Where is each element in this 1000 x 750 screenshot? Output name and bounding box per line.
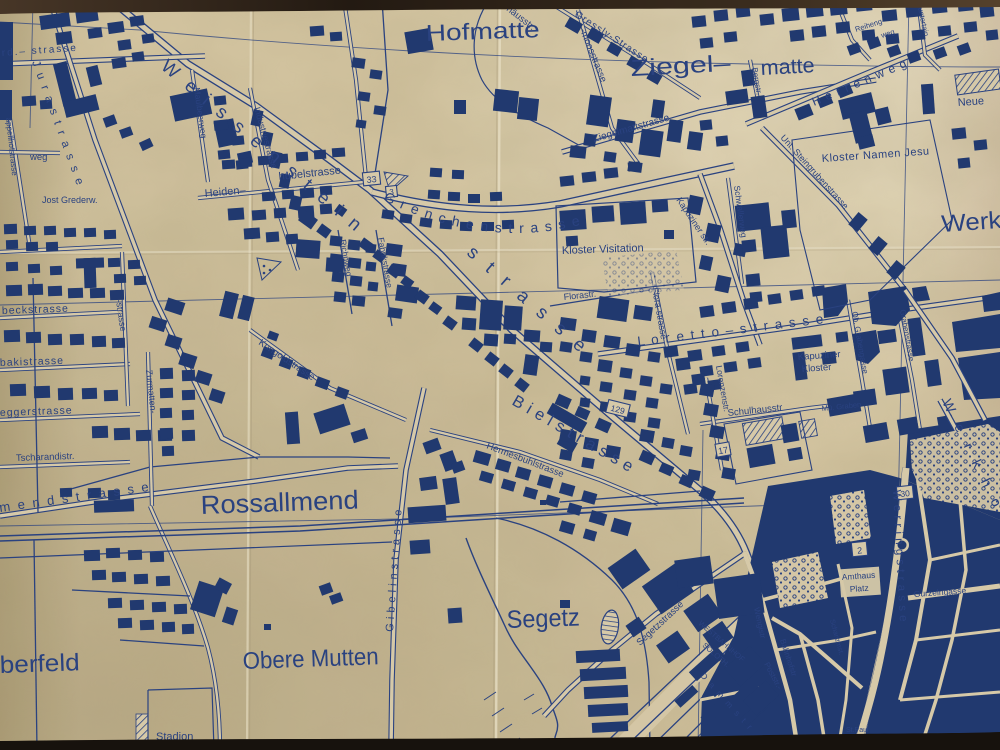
- svg-text:Neue: Neue: [957, 95, 984, 109]
- svg-text:berfeld: berfeld: [0, 649, 80, 679]
- svg-text:Werk: Werk: [941, 207, 1000, 238]
- svg-text:beckstrasse: beckstrasse: [2, 303, 69, 317]
- svg-text:weg: weg: [29, 152, 47, 163]
- svg-text:Rossallmend: Rossallmend: [200, 485, 359, 520]
- svg-text:2: 2: [857, 545, 863, 555]
- svg-text:33: 33: [366, 174, 377, 185]
- svg-text:bakistrasse: bakistrasse: [0, 355, 64, 369]
- svg-text:Segetz: Segetz: [506, 603, 580, 634]
- svg-text:Tscharandistr.: Tscharandistr.: [16, 451, 75, 464]
- svg-text:Jost Grederw.: Jost Grederw.: [42, 195, 98, 205]
- svg-text:Platz: Platz: [849, 583, 869, 594]
- svg-text:Kloster: Kloster: [801, 362, 831, 375]
- svg-text:St.Paul: St.Paul: [846, 727, 869, 734]
- svg-text:Ziegel–: Ziegel–: [630, 50, 731, 81]
- svg-text:Obere Mutten: Obere Mutten: [242, 643, 379, 675]
- svg-text:matte: matte: [760, 54, 815, 80]
- svg-text:17: 17: [717, 445, 729, 457]
- svg-text:eggerstrasse: eggerstrasse: [0, 404, 73, 419]
